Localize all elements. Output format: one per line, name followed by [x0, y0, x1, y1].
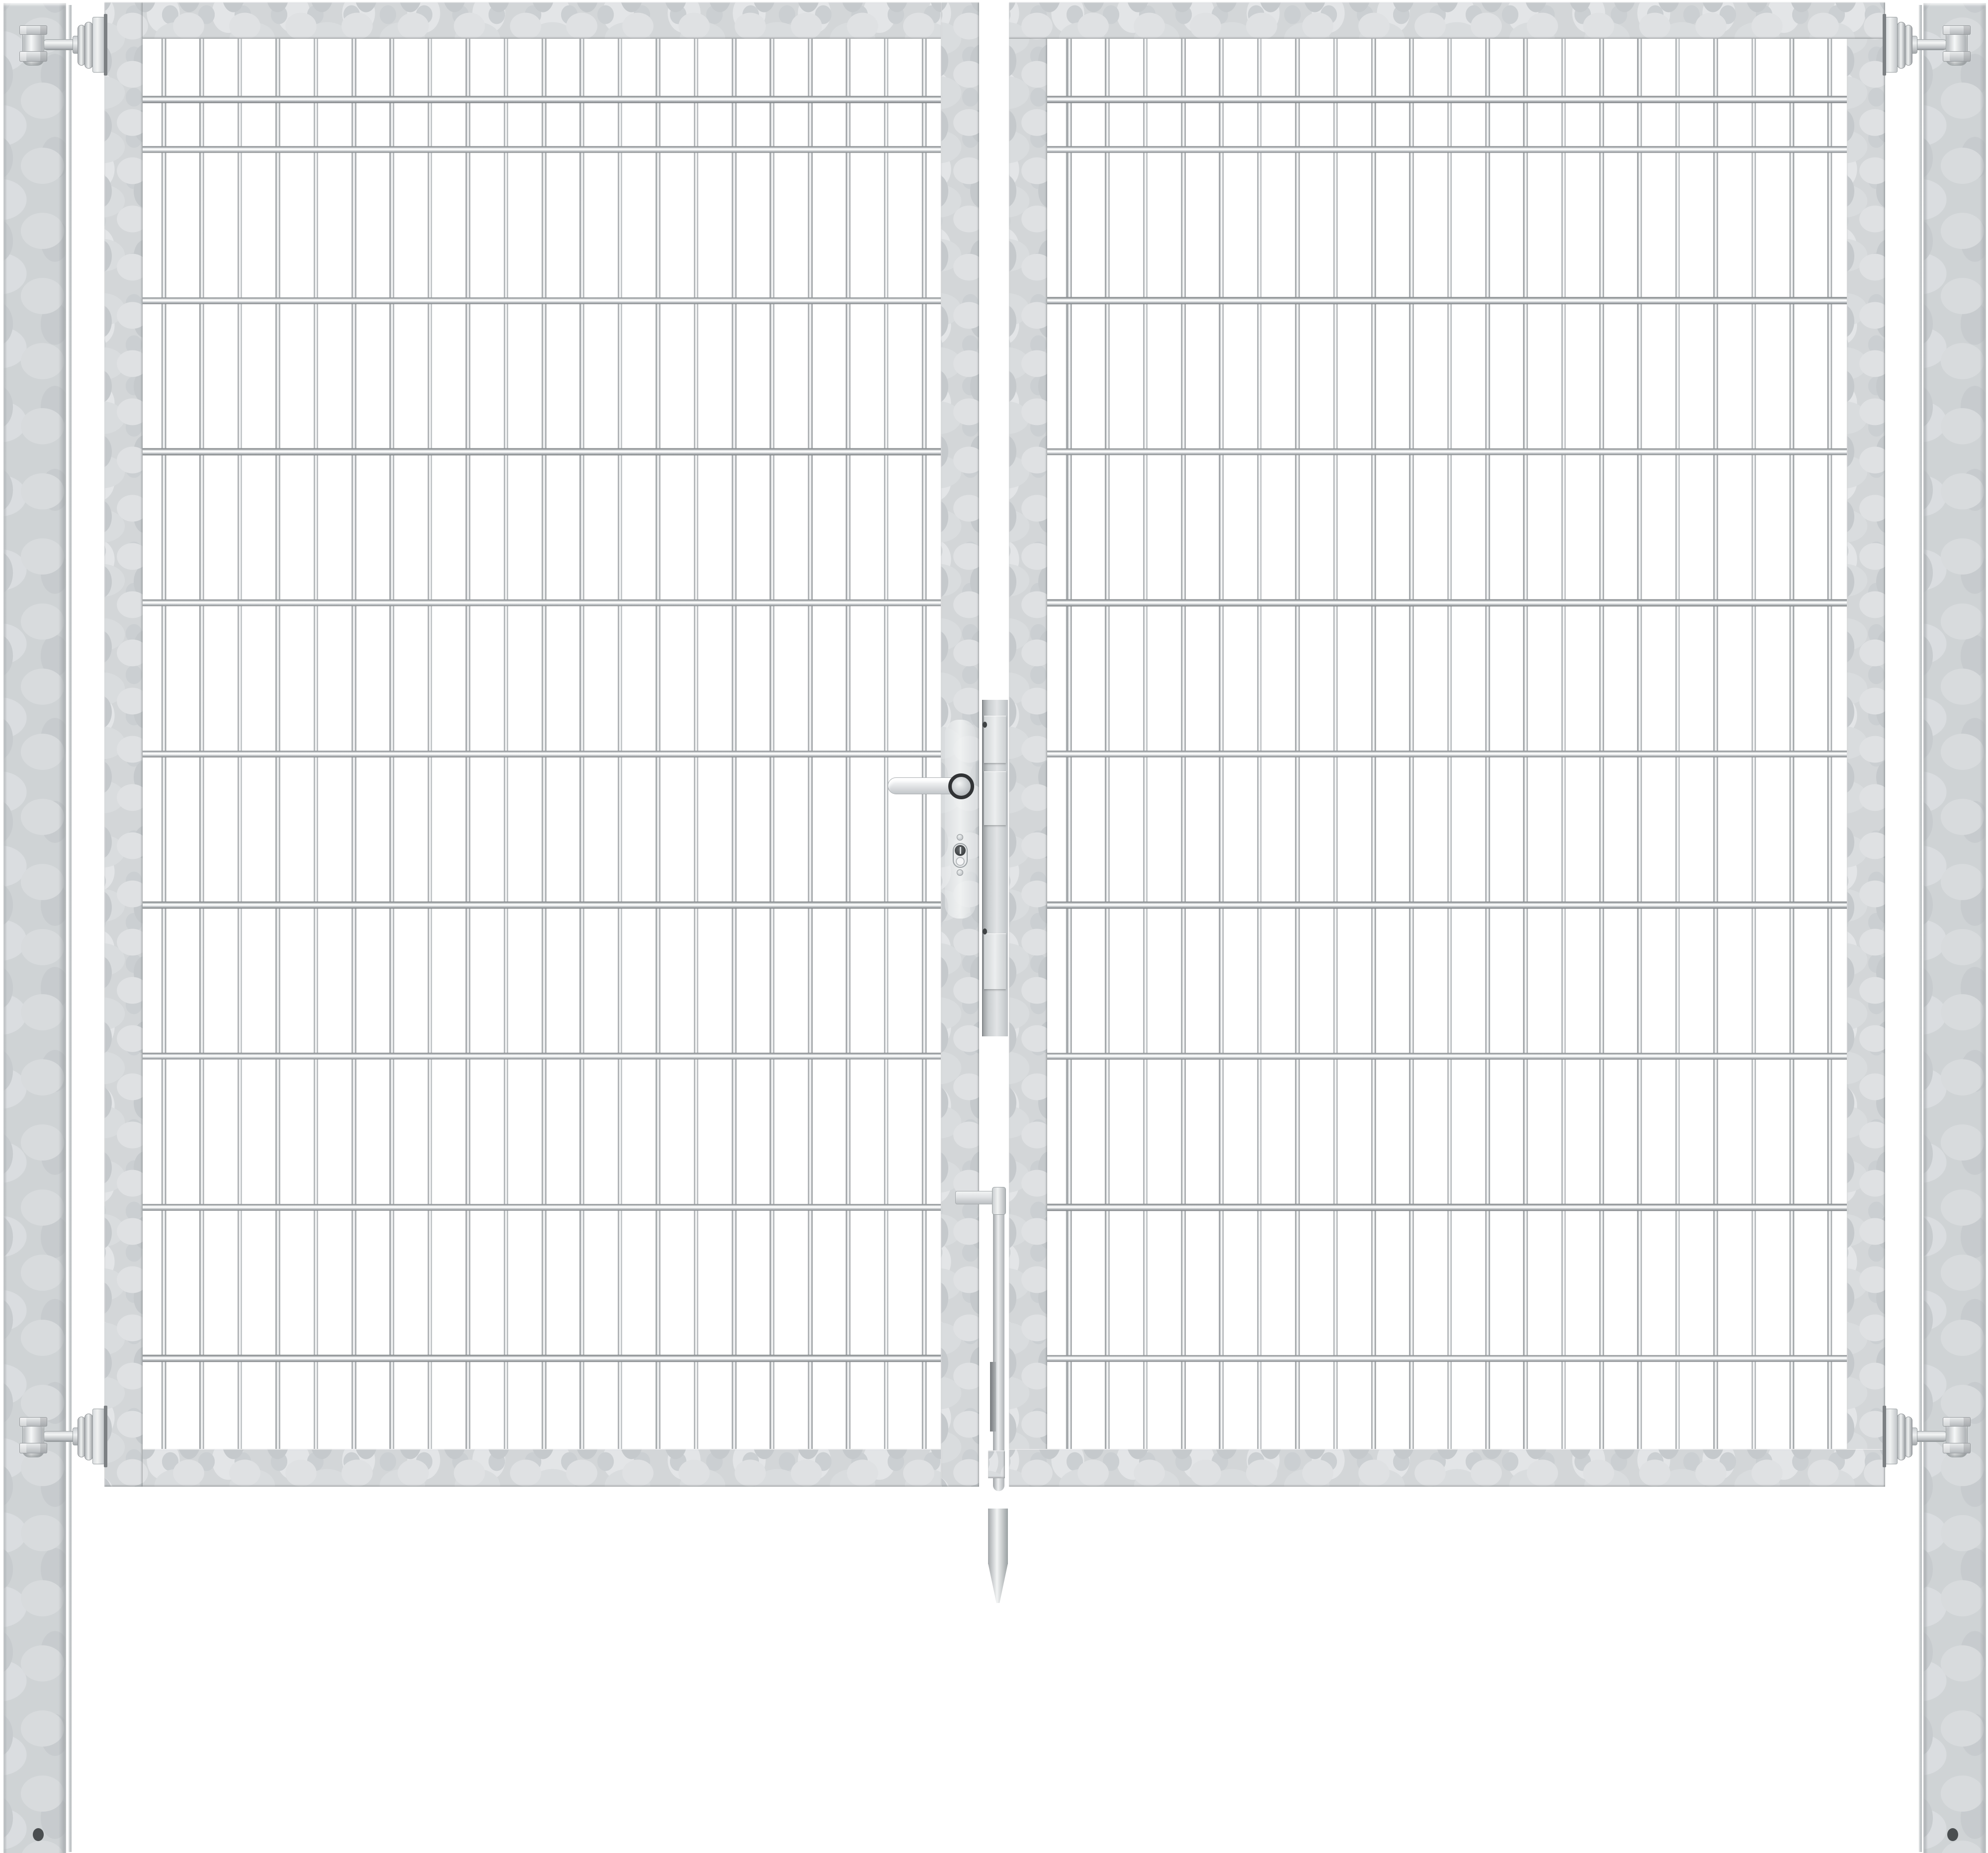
hinge-bottom-left-hinge-adjust-disc-b [84, 1414, 93, 1460]
ground-spike-point [988, 1563, 1008, 1603]
hinge-bottom-right-hinge-adjust-disc-b [1897, 1414, 1905, 1460]
hinge-top-left-hinge-nut-bottom [19, 51, 47, 62]
handle-rose-ring [948, 773, 974, 799]
hinge-bottom-right-hinge-bracket-edge [1883, 1406, 1886, 1467]
post-right-drain-hole [1947, 1828, 1958, 1841]
hinge-bottom-left-hinge-nut-bottom [19, 1443, 47, 1453]
drop-bolt-guide [990, 1362, 996, 1432]
galvanized-double-gate-photo [0, 0, 1988, 1853]
hinge-bottom-left-hinge-bracket-edge [104, 1406, 107, 1467]
strip-rivet-upper [983, 722, 987, 728]
lock-backplate [945, 720, 976, 919]
hinge-top-left-hinge-nut-top [19, 25, 47, 35]
hinge-bottom-right-hinge-nut-bottom [1943, 1443, 1971, 1453]
profile-cylinder [955, 845, 966, 856]
right-wing-outer-stile [1847, 2, 1885, 1487]
strip-rivet-lower [983, 928, 987, 934]
hinge-top-right-hinge-nut-top [1943, 25, 1971, 35]
hinge-bottom-right-hinge-nut-top [1943, 1417, 1971, 1427]
escutcheon-screw-bottom [957, 869, 963, 876]
drop-bolt-rod [993, 1188, 1004, 1491]
hinge-top-left-hinge-adjust-disc-b [84, 22, 93, 69]
hinge-top-right-hinge-bracket-edge [1883, 14, 1886, 76]
post-right [1923, 3, 1986, 1853]
hinge-top-right-hinge-nut-bottom [1943, 51, 1971, 62]
hinge-top-left-hinge-frame-bracket [92, 17, 105, 73]
escutcheon-screw-top [957, 834, 963, 841]
ground-spike-shaft [988, 1509, 1008, 1564]
hinge-top-right-hinge-adjust-disc-a [1905, 25, 1912, 66]
right-wing-bottom-rail [1009, 1449, 1885, 1487]
right-wing-inner-stile [1009, 2, 1047, 1487]
post-left-drain-hole [33, 1828, 44, 1841]
left-wing-bottom-rail [104, 1449, 979, 1487]
hinge-bottom-left-hinge-frame-bracket [92, 1409, 105, 1464]
mesh-left-wing [143, 39, 941, 1449]
cylinder-slot [956, 857, 965, 866]
drop-bolt-head [992, 1187, 1006, 1215]
strike-plate-lower [984, 933, 1006, 989]
hinge-top-left-hinge-bracket-edge [104, 14, 107, 76]
strike-plate-upper [984, 716, 1006, 763]
mesh-right-wing [1047, 39, 1847, 1449]
post-right-back-strip [1918, 5, 1922, 1852]
left-wing-top-rail [104, 2, 979, 39]
left-wing-outer-stile [104, 2, 143, 1487]
strike-plate-middle [984, 771, 1006, 825]
hinge-bottom-left-hinge-nut-top [19, 1417, 47, 1427]
hinge-bottom-right-hinge-frame-bracket [1885, 1409, 1898, 1464]
hinge-top-right-hinge-frame-bracket [1885, 17, 1898, 73]
hinge-top-right-hinge-adjust-disc-b [1897, 22, 1905, 69]
hinge-bottom-right-hinge-adjust-disc-a [1905, 1417, 1912, 1457]
drop-bolt-lower-guide [988, 1450, 1005, 1478]
right-wing-top-rail [1009, 2, 1885, 39]
post-left-back-strip [68, 5, 72, 1852]
post-left [3, 3, 66, 1853]
